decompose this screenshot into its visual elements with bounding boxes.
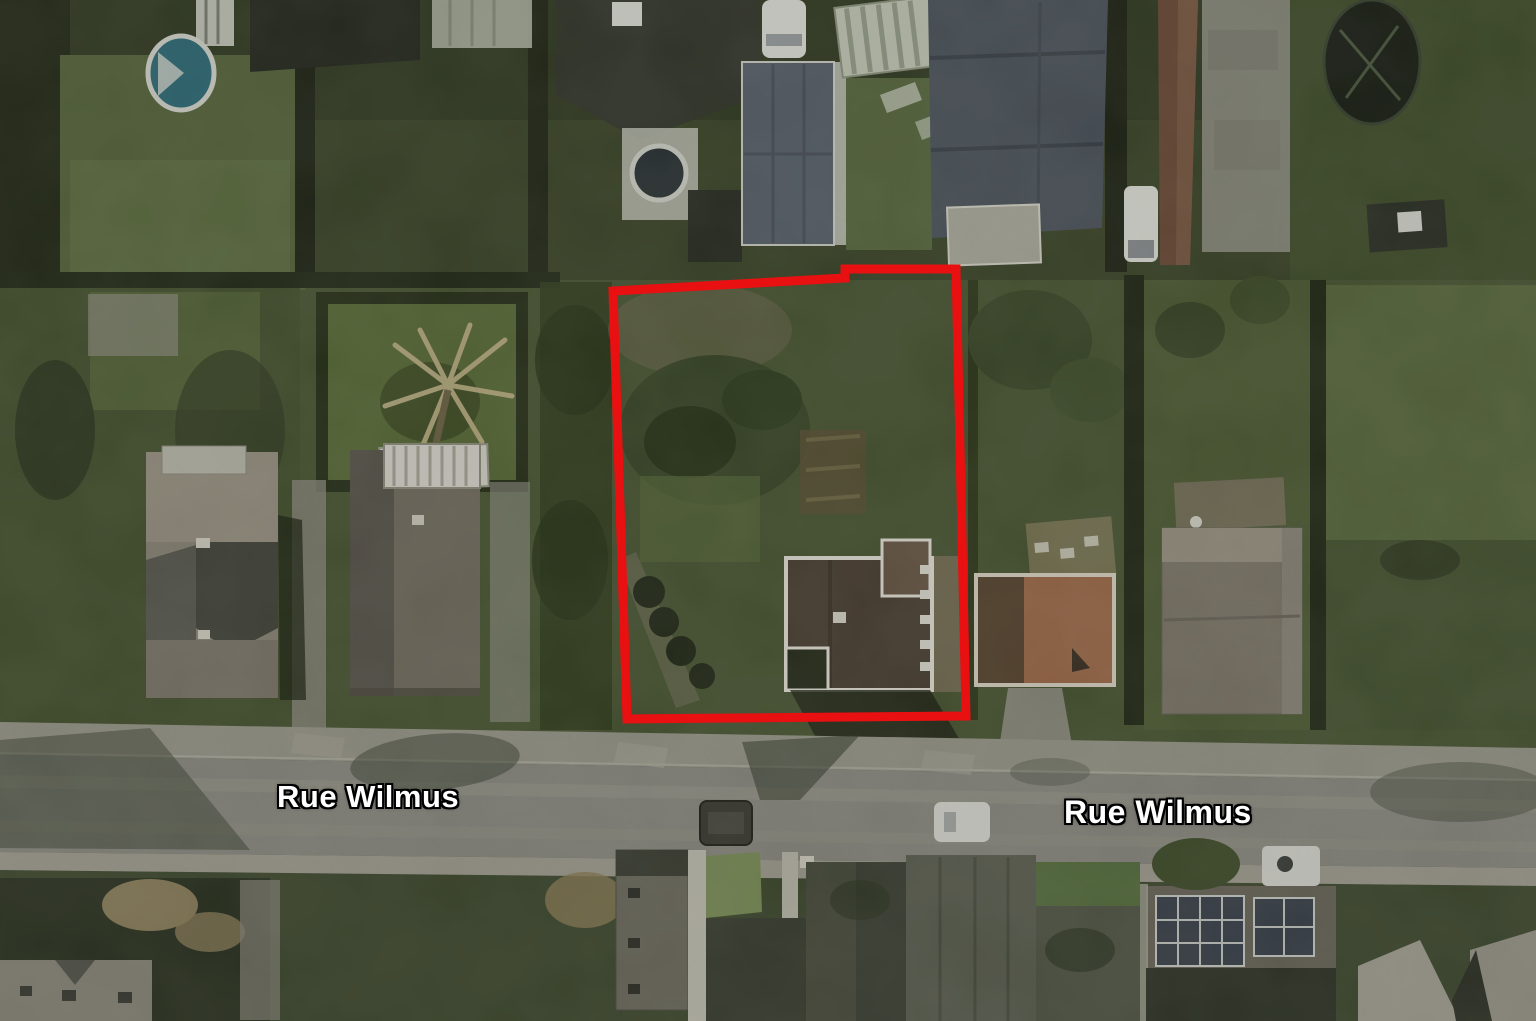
road-label-rue-wilmus-west: Rue Wilmus: [277, 779, 459, 815]
satellite-map[interactable]: Rue Wilmus Rue Wilmus: [0, 0, 1536, 1021]
texture-grain: [0, 0, 1536, 1021]
road-label-rue-wilmus-east: Rue Wilmus: [1064, 794, 1252, 831]
